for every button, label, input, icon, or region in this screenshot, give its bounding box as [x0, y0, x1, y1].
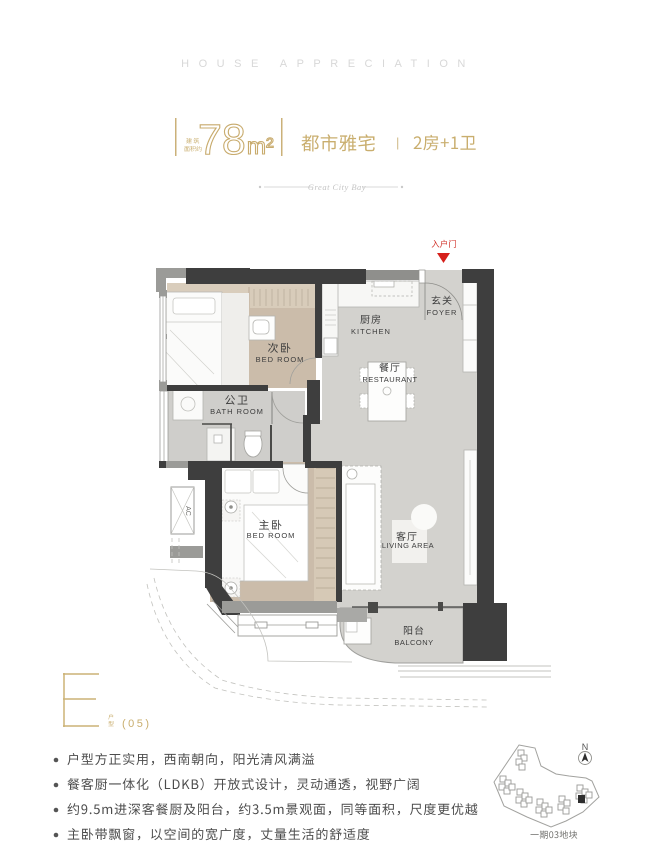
svg-text:FOYER: FOYER	[427, 308, 458, 317]
svg-text:BATH ROOM: BATH ROOM	[210, 407, 264, 416]
svg-text:KITCHEN: KITCHEN	[351, 327, 391, 336]
svg-text:AC: AC	[184, 506, 191, 516]
svg-text:N: N	[582, 742, 589, 752]
svg-text:BALCONY: BALCONY	[394, 638, 433, 647]
svg-text:|: |	[396, 135, 399, 150]
svg-text:LIVING AREA: LIVING AREA	[382, 541, 434, 550]
svg-text:RESTAURANT: RESTAURANT	[362, 375, 417, 384]
svg-text:Great City Bay: Great City Bay	[308, 182, 366, 192]
svg-text:(05): (05)	[122, 718, 152, 730]
svg-text:BED ROOM: BED ROOM	[256, 355, 305, 364]
svg-text:BED ROOM: BED ROOM	[247, 531, 296, 540]
svg-text:78m²: 78m²	[198, 116, 274, 164]
svg-text:HOUSE APPRECIATION: HOUSE APPRECIATION	[181, 58, 475, 70]
